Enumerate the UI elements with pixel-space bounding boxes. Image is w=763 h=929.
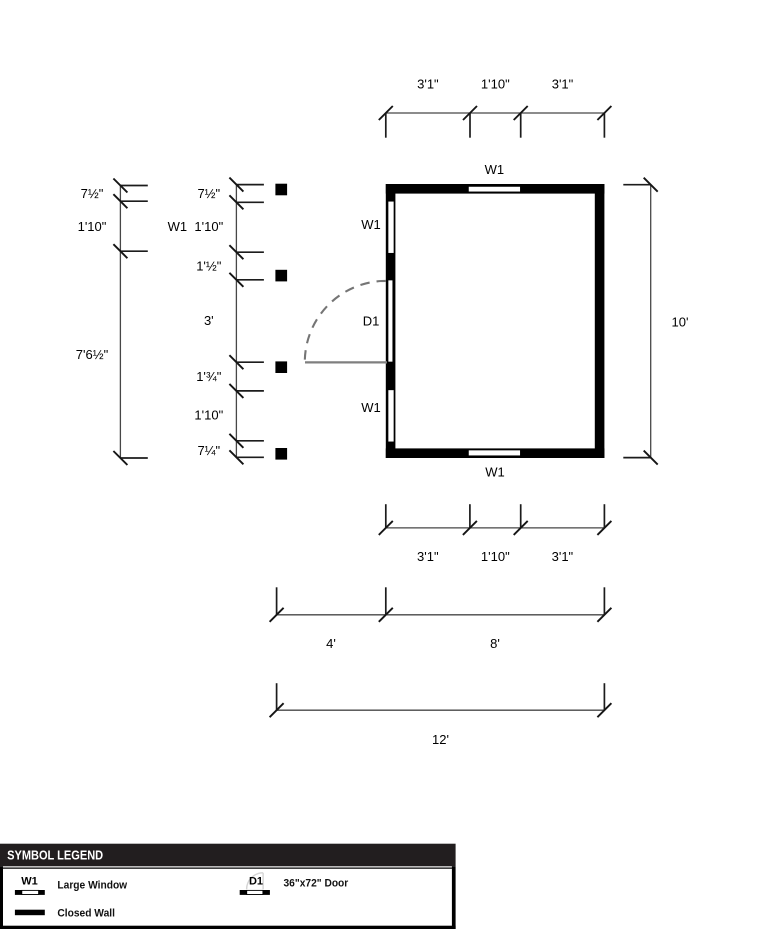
- svg-text:12': 12': [432, 732, 449, 747]
- svg-text:3': 3': [204, 313, 214, 328]
- svg-text:W1: W1: [168, 219, 188, 234]
- svg-text:3'1": 3'1": [417, 549, 439, 564]
- svg-text:4': 4': [326, 636, 336, 651]
- svg-text:3'1": 3'1": [552, 76, 574, 91]
- svg-text:W1: W1: [21, 876, 38, 888]
- svg-text:1'10": 1'10": [78, 219, 107, 234]
- svg-text:SYMBOL LEGEND: SYMBOL LEGEND: [7, 848, 103, 863]
- svg-text:W1: W1: [361, 217, 381, 232]
- svg-text:1'¾": 1'¾": [196, 369, 222, 384]
- svg-text:D1: D1: [249, 876, 263, 888]
- svg-text:1'10": 1'10": [481, 76, 510, 91]
- svg-text:10': 10': [672, 315, 689, 330]
- svg-text:W1: W1: [485, 162, 505, 177]
- svg-text:3'1": 3'1": [417, 76, 439, 91]
- svg-text:1'½": 1'½": [196, 258, 222, 273]
- svg-text:Large Window: Large Window: [57, 879, 127, 891]
- svg-text:8': 8': [490, 636, 500, 651]
- svg-text:7'6½": 7'6½": [76, 347, 109, 362]
- svg-text:1'10": 1'10": [194, 408, 223, 423]
- svg-text:7½": 7½": [81, 186, 104, 201]
- svg-text:W1: W1: [485, 464, 505, 479]
- svg-text:W1: W1: [361, 400, 381, 415]
- svg-text:36"x72" Door: 36"x72" Door: [284, 877, 349, 889]
- svg-text:7½": 7½": [197, 186, 220, 201]
- svg-text:1'10": 1'10": [194, 219, 223, 234]
- svg-text:7¼": 7¼": [197, 443, 220, 458]
- svg-text:D1: D1: [363, 313, 380, 328]
- svg-text:3'1": 3'1": [552, 549, 574, 564]
- svg-text:1'10": 1'10": [481, 549, 510, 564]
- svg-text:Closed Wall: Closed Wall: [57, 907, 115, 919]
